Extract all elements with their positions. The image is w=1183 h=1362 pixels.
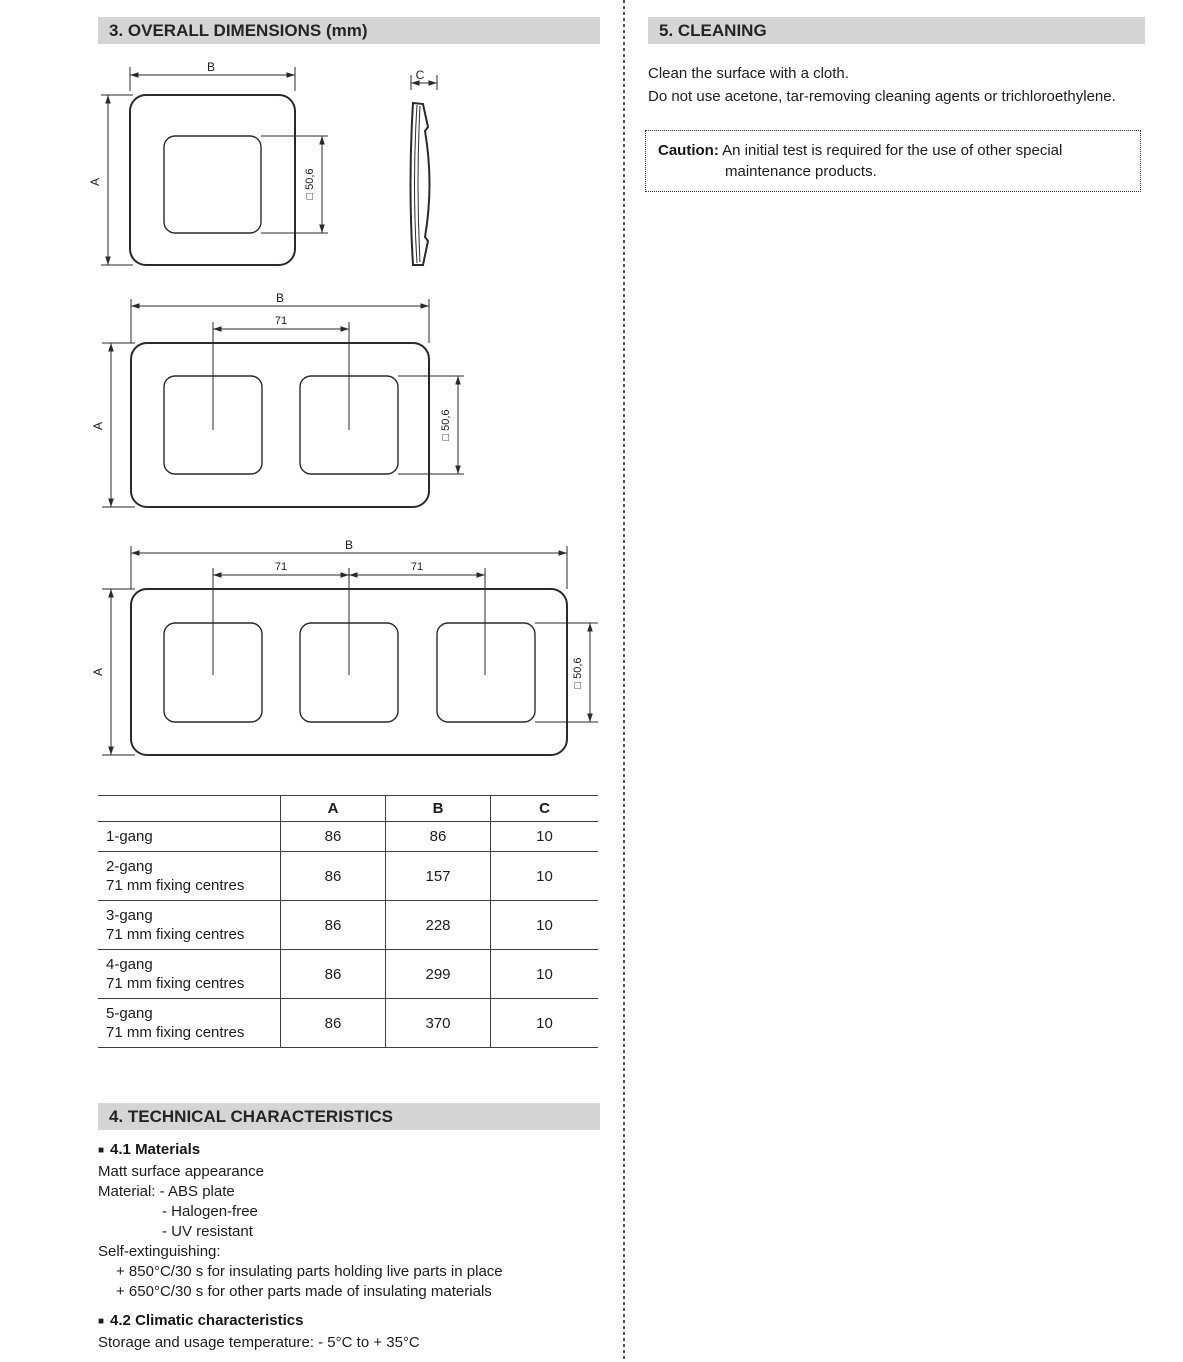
table-row-label: 5-gang 71 mm fixing centres bbox=[98, 999, 280, 1048]
climatic-line: Storage and usage temperature: - 5°C to … bbox=[98, 1333, 618, 1353]
materials-line: Material: - ABS plate bbox=[98, 1182, 618, 1202]
table-cell-a: 86 bbox=[280, 822, 385, 852]
plate-outline bbox=[131, 343, 429, 507]
table-cell-b: 228 bbox=[385, 901, 490, 950]
table-header-C: C bbox=[490, 795, 598, 822]
plate-window-3 bbox=[437, 623, 535, 722]
cleaning-line: Clean the surface with a cloth. bbox=[648, 62, 1148, 85]
climatic-heading: ■4.2 Climatic characteristics bbox=[98, 1311, 618, 1333]
table-cell-a: 86 bbox=[280, 999, 385, 1048]
table-cell-c: 10 bbox=[490, 950, 598, 999]
materials-heading: ■4.1 Materials bbox=[98, 1140, 618, 1162]
table-row-label: 2-gang 71 mm fixing centres bbox=[98, 852, 280, 901]
table-cell-a: 86 bbox=[280, 901, 385, 950]
drawing-2gang: B 71 A □ 50,6 bbox=[90, 293, 490, 518]
table-cell-b: 299 bbox=[385, 950, 490, 999]
dim-label-71: 71 bbox=[275, 315, 287, 327]
table-cell-c: 10 bbox=[490, 822, 598, 852]
plate-side-profile bbox=[411, 103, 430, 265]
dim-label-A: A bbox=[91, 422, 105, 430]
dim-label-71b: 71 bbox=[411, 561, 423, 573]
table-header-B: B bbox=[385, 795, 490, 822]
dim-label-A: A bbox=[91, 668, 105, 676]
materials-line: - UV resistant bbox=[162, 1222, 618, 1242]
caution-box: Caution: An initial test is required for… bbox=[645, 130, 1141, 192]
dim-label-71a: 71 bbox=[275, 561, 287, 573]
materials-line: + 650°C/30 s for other parts made of ins… bbox=[116, 1282, 618, 1302]
bullet-square-icon: ■ bbox=[98, 1316, 104, 1327]
table-cell-a: 86 bbox=[280, 852, 385, 901]
caution-line: Caution: An initial test is required for… bbox=[658, 140, 1128, 161]
table-cell-c: 10 bbox=[490, 901, 598, 950]
column-divider bbox=[623, 0, 625, 1362]
table-cell-c: 10 bbox=[490, 852, 598, 901]
plate-window bbox=[164, 136, 261, 233]
materials-line: Self-extinguishing: bbox=[98, 1242, 618, 1262]
materials-line: + 850°C/30 s for insulating parts holdin… bbox=[116, 1262, 618, 1282]
section5-body: Clean the surface with a cloth. Do not u… bbox=[648, 62, 1148, 108]
dim-label-B: B bbox=[207, 60, 215, 74]
dim-label-506: □ 50,6 bbox=[572, 657, 584, 688]
dim-label-506: □ 50,6 bbox=[440, 409, 452, 440]
drawing-3gang: B 71 71 A □ 50,6 bbox=[90, 540, 605, 772]
table-cell-c: 10 bbox=[490, 999, 598, 1048]
drawing-1gang: B A □ 50,6 C bbox=[90, 60, 450, 290]
bullet-square-icon: ■ bbox=[98, 1145, 104, 1156]
table-row-label: 1-gang bbox=[98, 822, 280, 852]
section4-body: ■4.1 Materials Matt surface appearance M… bbox=[98, 1140, 618, 1353]
dimensions-table: A B C 1-gang 86 86 10 2-gang 71 mm fixin… bbox=[98, 795, 598, 1048]
caution-label: Caution: bbox=[658, 142, 719, 159]
dim-label-B: B bbox=[276, 293, 284, 305]
dim-label-506: □ 50,6 bbox=[304, 168, 316, 199]
table-cell-b: 157 bbox=[385, 852, 490, 901]
materials-line: Matt surface appearance bbox=[98, 1162, 618, 1182]
table-row-label: 4-gang 71 mm fixing centres bbox=[98, 950, 280, 999]
section3-header: 3. OVERALL DIMENSIONS (mm) bbox=[98, 17, 600, 44]
dim-label-A: A bbox=[90, 178, 102, 186]
datasheet-page: 3. OVERALL DIMENSIONS (mm) 5. CLEANING B… bbox=[0, 0, 1183, 1362]
table-cell-b: 86 bbox=[385, 822, 490, 852]
table-cell-b: 370 bbox=[385, 999, 490, 1048]
dim-label-B: B bbox=[345, 540, 353, 552]
table-header-A: A bbox=[280, 795, 385, 822]
plate-outline bbox=[130, 95, 295, 265]
dim-label-C: C bbox=[416, 68, 425, 82]
materials-line: - Halogen-free bbox=[162, 1202, 618, 1222]
cleaning-line: Do not use acetone, tar-removing cleanin… bbox=[648, 85, 1148, 108]
caution-line: maintenance products. bbox=[725, 161, 1128, 182]
section4-header: 4. TECHNICAL CHARACTERISTICS bbox=[98, 1103, 600, 1130]
table-cell-a: 86 bbox=[280, 950, 385, 999]
section5-header: 5. CLEANING bbox=[648, 17, 1145, 44]
table-corner-cell bbox=[98, 795, 280, 822]
table-row-label: 3-gang 71 mm fixing centres bbox=[98, 901, 280, 950]
